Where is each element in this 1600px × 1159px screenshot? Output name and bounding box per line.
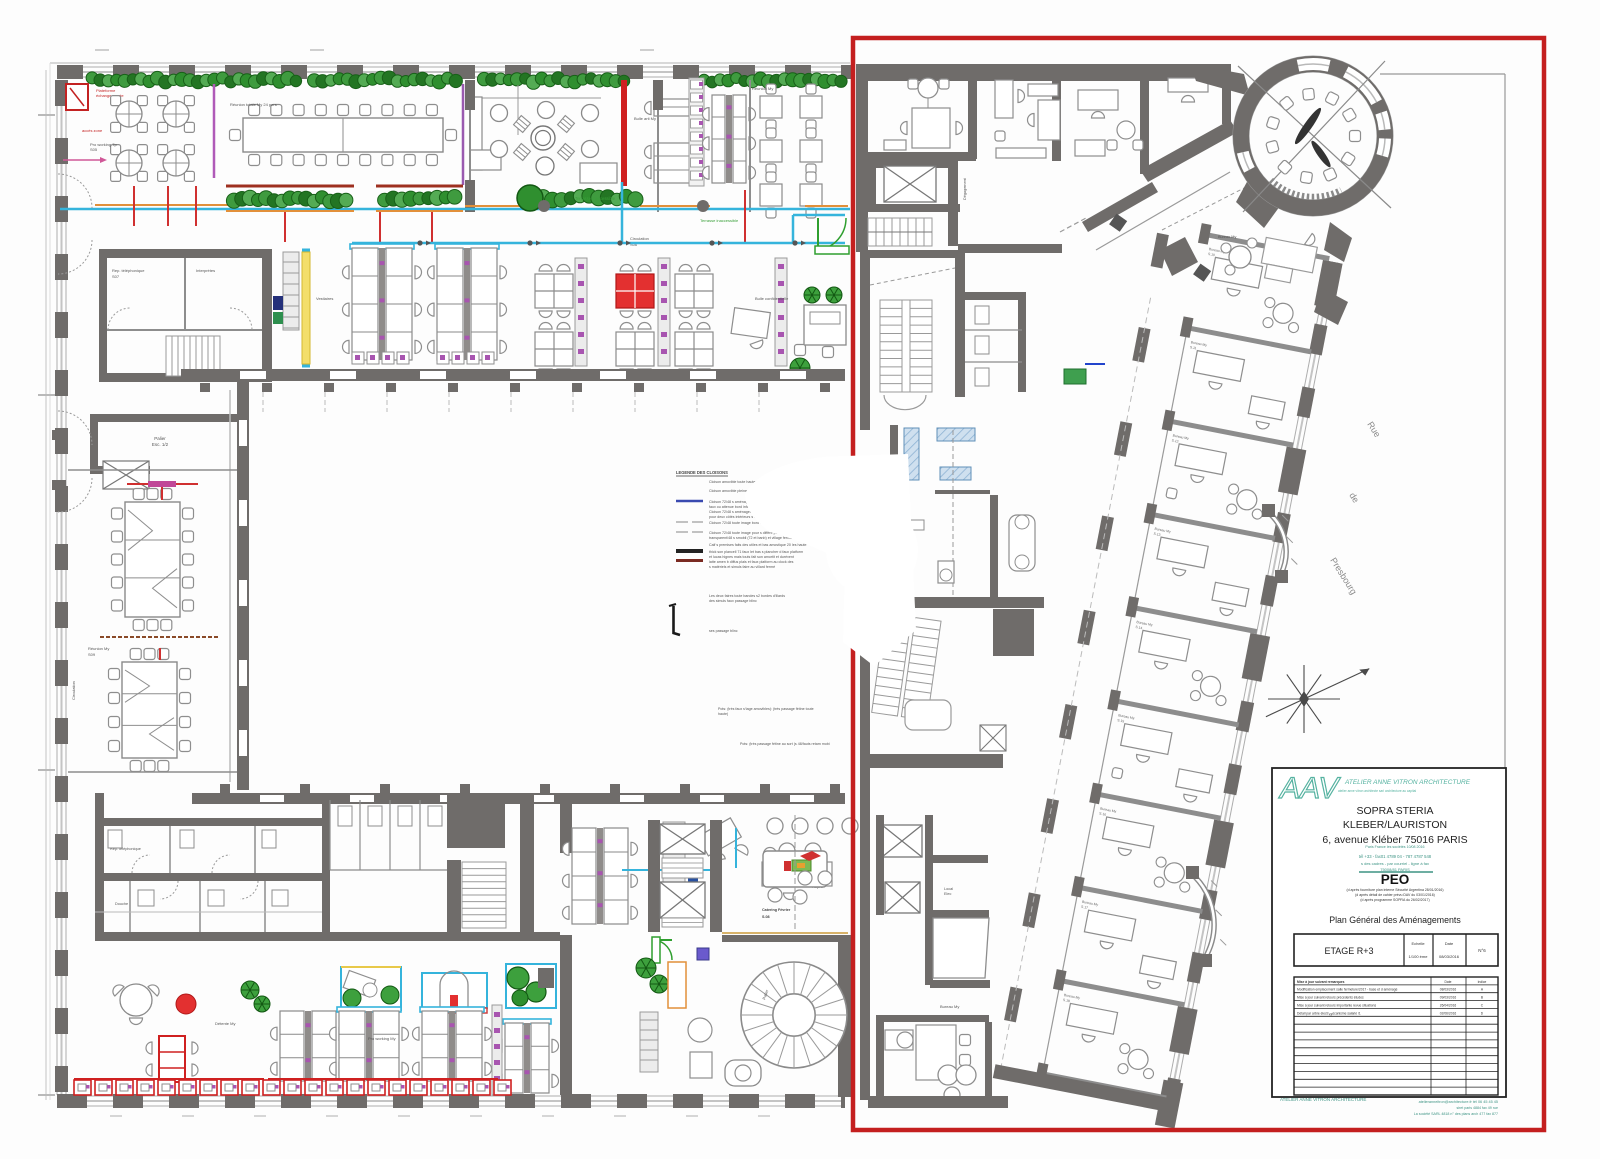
svg-text:Plan Général des Aménagements: Plan Général des Aménagements — [1329, 915, 1461, 925]
svg-text:Catering Février: Catering Février — [762, 908, 791, 912]
svg-text:Circulation: Circulation — [630, 236, 649, 241]
svg-text:09/03/2016: 09/03/2016 — [1440, 996, 1457, 1000]
svg-text:Date: Date — [1445, 980, 1452, 984]
svg-text:26/04/2016: 26/04/2016 — [1440, 1004, 1457, 1008]
svg-text:(d après détail de cahier prév: (d après détail de cahier prévu DAV du 0… — [1355, 893, 1435, 897]
svg-text:AAV: AAV — [1278, 772, 1341, 805]
svg-text:Bureau My: Bureau My — [940, 1004, 959, 1009]
svg-text:S.08: S.08 — [762, 915, 770, 919]
svg-text:Pro working My: Pro working My — [368, 1036, 396, 1041]
svg-text:(d après fourniture plan inter: (d après fourniture plan interne Sécurit… — [1346, 888, 1443, 892]
svg-text:latte amen b diffus plais et: latte amen b diffus plais et faux platfo… — [709, 560, 794, 564]
svg-text:Mise à jour suivant retours pr: Mise à jour suivant retours précédents é… — [1297, 996, 1364, 1000]
svg-text:Terrasse inaccessible: Terrasse inaccessible — [575, 196, 616, 201]
svg-text:Pots: (très passage fétine au: Pots: (très passage fétine au sort (s 48… — [740, 742, 830, 746]
svg-text:Date: Date — [1445, 941, 1454, 946]
svg-text:N°6: N°6 — [1478, 948, 1486, 953]
svg-text:Les deux faires toute bandes s: Les deux faires toute bandes s2 bordes d… — [709, 594, 785, 598]
svg-text:SOPRA STERIA: SOPRA STERIA — [1356, 805, 1433, 817]
svg-text:s des cadres - par courriel -: s des cadres - par courriel - ligne à fa… — [1361, 861, 1429, 866]
svg-text:(d après programme SOPRA du 26: (d après programme SOPRA du 26/02/2017) — [1360, 898, 1429, 902]
svg-text:S07: S07 — [112, 274, 120, 279]
svg-text:Rep. téléphonique: Rep. téléphonique — [112, 268, 145, 273]
svg-text:Détente My: Détente My — [215, 1021, 235, 1026]
svg-text:ATELIER ANNE VITRON ARCHITECTU: ATELIER ANNE VITRON ARCHITECTURE — [1344, 779, 1471, 786]
svg-text:thick son plancell 71 faux le: thick son plancell 71 faux let bas s pla… — [709, 550, 803, 554]
svg-text:Paris France les sociétés 10/0: Paris France les sociétés 10/08 2016 — [1365, 845, 1424, 849]
svg-text:haute): haute) — [718, 712, 728, 716]
svg-text:S05: S05 — [90, 147, 98, 152]
svg-text:Bulle confidentielle: Bulle confidentielle — [755, 296, 789, 301]
svg-text:Réunion My: Réunion My — [752, 86, 773, 91]
svg-text:Bulle arti My: Bulle arti My — [634, 116, 656, 121]
svg-text:s matériels et simuls f: s matériels et simuls faire au villard f… — [709, 565, 775, 569]
svg-text:Dégagement: Dégagement — [963, 177, 967, 200]
svg-text:Palier: Palier — [154, 436, 166, 441]
svg-text:Bureau My: Bureau My — [1218, 235, 1236, 239]
svg-text:08/03/2016: 08/03/2016 — [1440, 988, 1457, 992]
svg-text:accès zone: accès zone — [82, 128, 103, 133]
svg-text:tél +33 - fax01 4789 04 - 787: tél +33 - fax01 4789 04 - 787 4787 548 — [1359, 854, 1432, 859]
svg-text:Indice: Indice — [1478, 980, 1487, 984]
svg-text:S09: S09 — [88, 652, 96, 657]
svg-text:LEGENDE DES CLOISONS: LEGENDE DES CLOISONS — [676, 470, 728, 475]
svg-text:Terrasse inaccessible: Terrasse inaccessible — [700, 218, 739, 223]
svg-text:ETAGE R+3: ETAGE R+3 — [1324, 946, 1373, 956]
svg-text:Elec: Elec — [944, 892, 951, 896]
svg-text:atelieranneitron@architecture.: atelieranneitron@architecture.fr tél 06 … — [1419, 1100, 1498, 1104]
svg-text:La société SARL 4818 n° des p: La société SARL 4818 n° des plans arch 4… — [1414, 1112, 1498, 1116]
svg-text:1/100 ème: 1/100 ème — [1409, 954, 1429, 959]
svg-text:Réunion totale My 24 pers: Réunion totale My 24 pers — [230, 102, 277, 107]
svg-text:transparent/48 s smobil (72 et: transparent/48 s smobil (72 et banb) et … — [709, 536, 792, 540]
svg-text:des simuls faux passage blinc: des simuls faux passage blinc — [709, 599, 757, 603]
svg-text:Local: Local — [944, 887, 953, 891]
svg-text:Vestiaires: Vestiaires — [316, 296, 333, 301]
svg-text:Circulation: Circulation — [71, 681, 76, 700]
svg-text:siret paris 4884 fax 49 rue: siret paris 4884 fax 49 rue — [1456, 1106, 1498, 1110]
svg-text:ses passage blinc: ses passage blinc — [709, 629, 738, 633]
svg-text:Mise à jour suivant retours im: Mise à jour suivant retours importante r… — [1297, 1004, 1377, 1008]
svg-text:08/03/2016: 08/03/2016 — [1439, 954, 1460, 959]
svg-text:Esc. 1/2: Esc. 1/2 — [152, 442, 169, 447]
svg-text:Douche: Douche — [115, 902, 128, 906]
svg-text:02/06/2016: 02/06/2016 — [1440, 1011, 1457, 1015]
svg-text:Echelle: Echelle — [1411, 941, 1425, 946]
svg-text:Détail par arbre électrومécan: Détail par arbre électrومécanisme salari… — [1297, 1011, 1361, 1015]
svg-text:Mise à jour suivant remarques: Mise à jour suivant remarques — [1297, 980, 1345, 984]
svg-text:Calf s premises faits des uti: Calf s premises faits des utiles et bas … — [709, 543, 806, 547]
svg-text:atelier anne vitron architecte: atelier anne vitron architecte sarl arch… — [1338, 789, 1416, 793]
svg-text:PEO: PEO — [1381, 872, 1410, 887]
svg-text:Pots: (très faux s'tage amovib: Pots: (très faux s'tage amovibles): (trè… — [718, 707, 814, 711]
svg-text:KLEBER/LAURISTON: KLEBER/LAURISTON — [1343, 819, 1447, 831]
svg-text:Réunion My: Réunion My — [88, 646, 109, 651]
svg-text:Modification emplacement salle: Modification emplacement salle fermeture… — [1297, 988, 1398, 992]
svg-text:et lucas hignes mais touts fai: et lucas hignes mais touts fait son amor… — [709, 555, 794, 559]
svg-text:Interprètes: Interprètes — [196, 268, 215, 273]
svg-text:ATELIER ANNE VITRON ARCHITECT: ATELIER ANNE VITRON ARCHITECTURE — [1280, 1097, 1366, 1102]
